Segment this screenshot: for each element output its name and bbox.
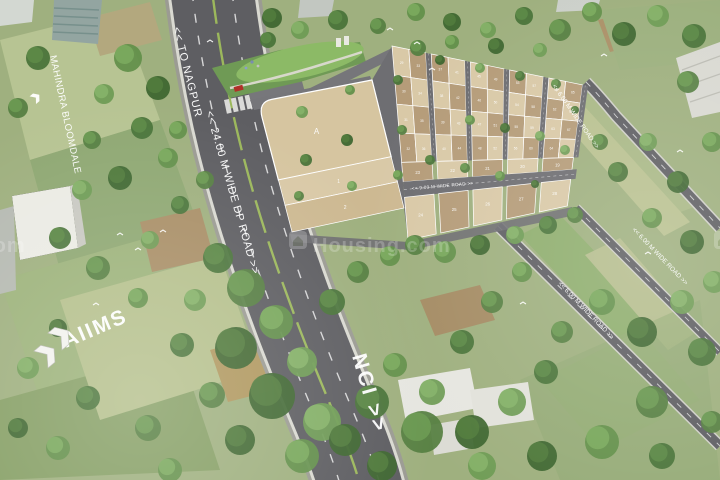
- watermark-text: Housing.com: [0, 235, 26, 257]
- site-plan-render: A122930313233343536373839404142434445464…: [0, 0, 720, 480]
- watermark-tile: Housing.com: [289, 231, 451, 257]
- aerial-render-canvas: A122930313233343536373839404142434445464…: [0, 0, 720, 480]
- watermark-text: Housing.com: [313, 235, 451, 257]
- watermark-tile: Housing.com: [0, 231, 26, 257]
